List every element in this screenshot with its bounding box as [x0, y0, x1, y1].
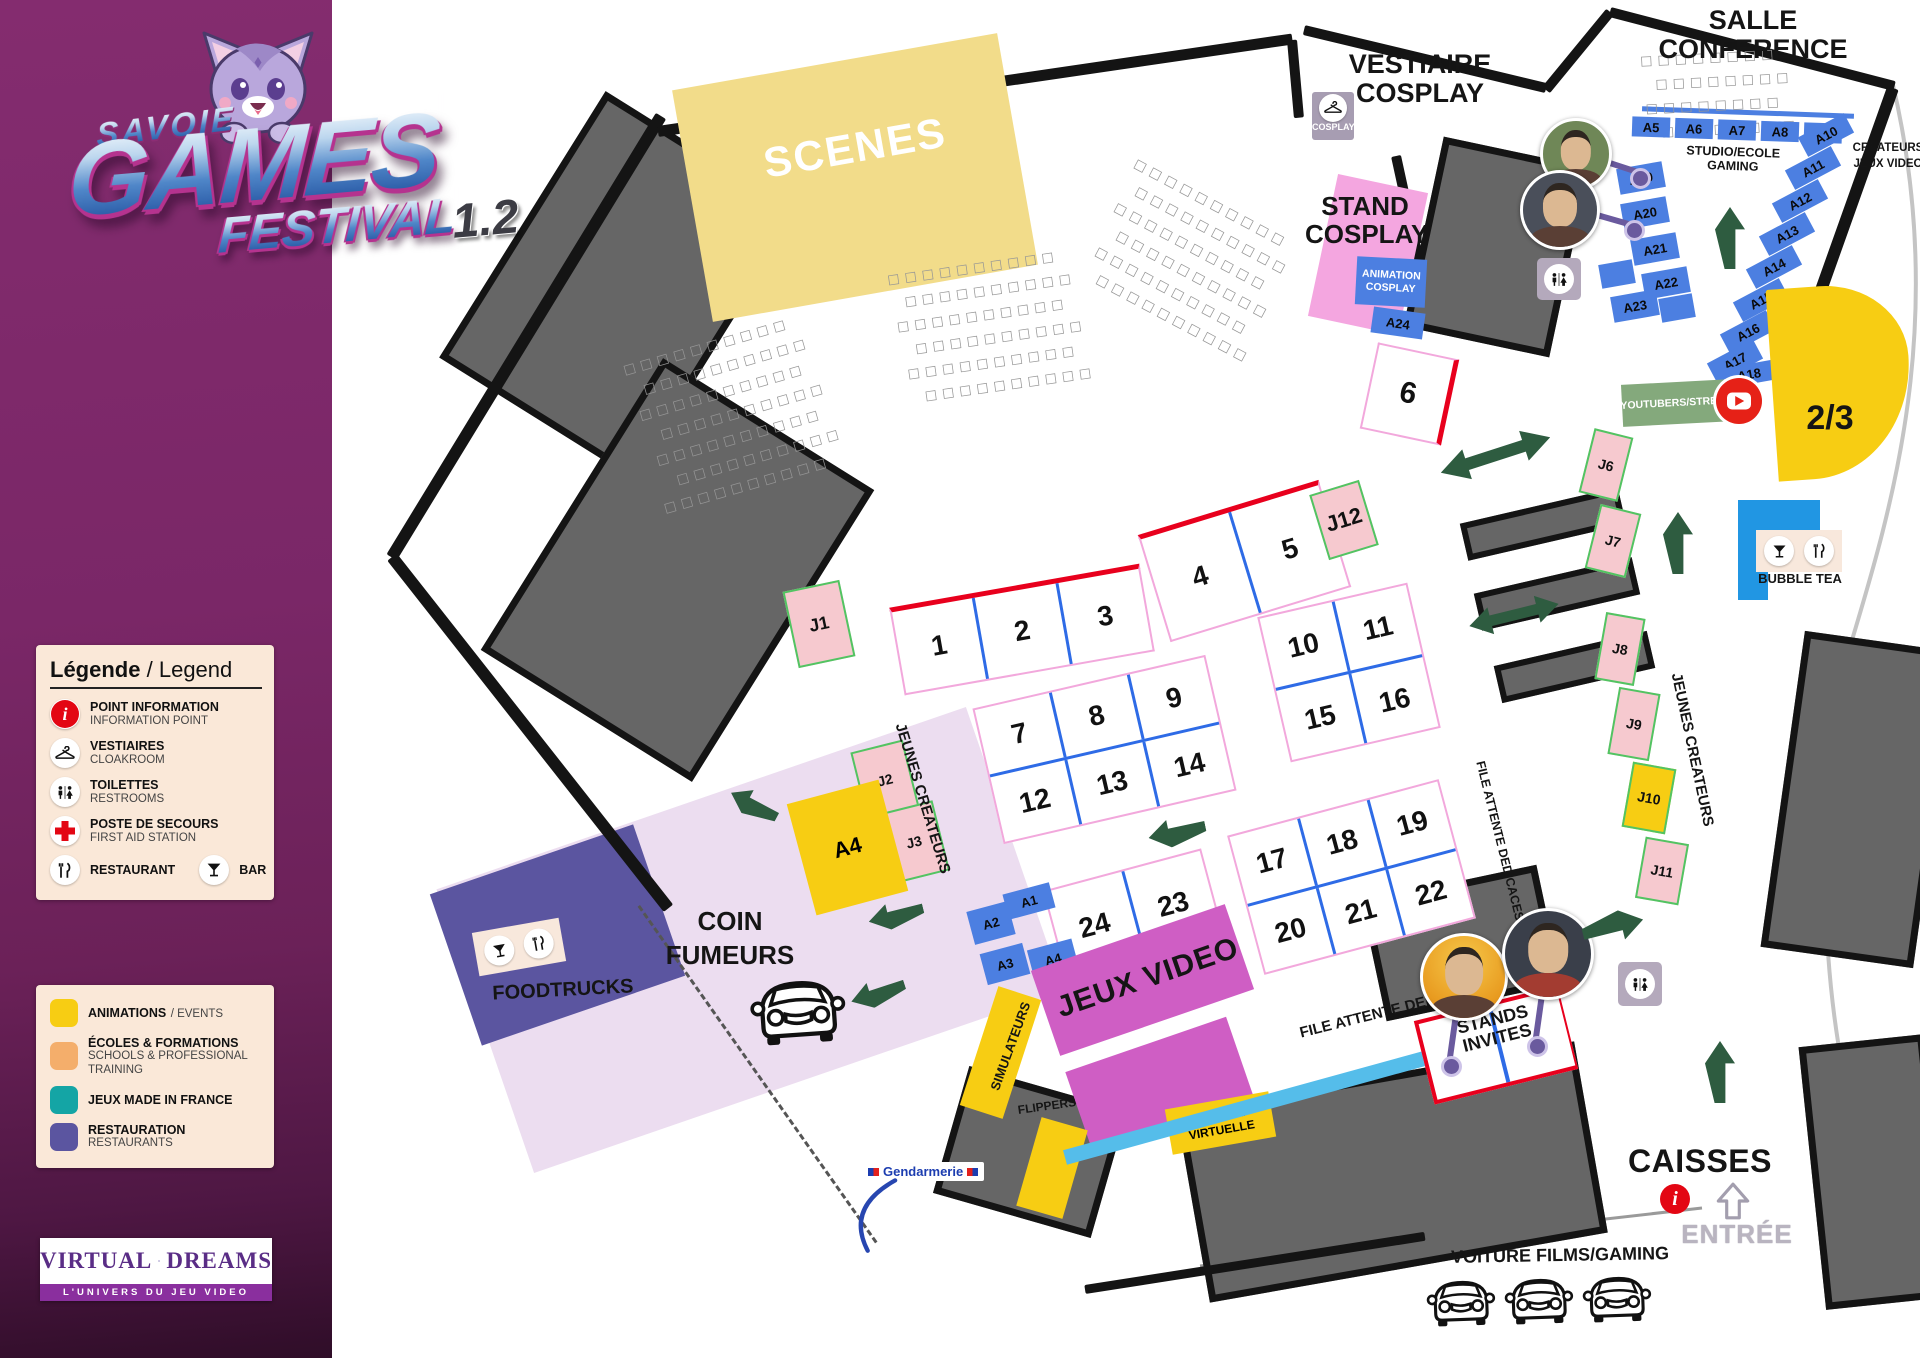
bar-icon: [1764, 536, 1794, 566]
restrooms-marker: [1618, 962, 1662, 1006]
bubble-tea-icons: [1756, 530, 1842, 572]
seat-rows-center: □□□□□□□□□□□□□□□□□□□□□□□□□□□□□□□□□□□□□□□□…: [886, 242, 1098, 412]
studio-ecole-gaming-label: STUDIO/ECOLE GAMING: [1668, 144, 1799, 176]
car-icon: [1580, 1267, 1654, 1327]
restroom-icon: [1625, 969, 1655, 999]
booth-12: 12: [990, 760, 1079, 841]
guest-pin-dot: [1630, 168, 1651, 189]
festival-map-page: Légende / Legend i POINT INFORMATION INF…: [0, 0, 1920, 1358]
restaurant-icon: [521, 926, 556, 961]
guest-pin-dot: [1527, 1036, 1548, 1057]
car-icon: [1424, 1271, 1498, 1331]
salle-conference-label: SALLE CONFERENCE: [1648, 6, 1858, 64]
guest-avatar: [1520, 170, 1600, 250]
info-point-marker: i: [1660, 1184, 1690, 1214]
animation-2-3-label: 2/3: [1790, 400, 1870, 437]
restrooms-marker: [1537, 258, 1581, 300]
gendarmerie-flag-icon: [967, 1168, 978, 1176]
stand-cosplay-label: STAND COSPLAY: [1305, 192, 1425, 248]
guest-pin-dot: [1441, 1056, 1462, 1077]
entrance-arrow-icon: [1712, 1180, 1754, 1222]
voiture-films-gaming-label: VOITURE FILMS/GAMING: [1445, 1244, 1675, 1267]
stand-a7: A7: [1718, 119, 1757, 140]
cosplay-cloakroom-badge: COSPLAY: [1312, 92, 1354, 140]
guest-pin-dot: [1624, 220, 1645, 241]
car-icon: [745, 965, 850, 1054]
animation-cosplay-stand: ANIMATION COSPLAY: [1355, 256, 1427, 308]
bar-icon: [482, 933, 517, 968]
stand-a5: A5: [1632, 116, 1671, 137]
booth-2: 2: [972, 584, 1069, 679]
vestiaire-cosplay-label: VESTIAIRE COSPLAY: [1345, 50, 1495, 108]
youtube-icon: [1716, 378, 1762, 424]
bubble-tea-label: BUBBLE TEA: [1750, 572, 1850, 586]
stand-a8: A8: [1761, 121, 1800, 142]
restroom-icon: [1544, 264, 1574, 294]
createurs-jeux-video-label: CREATEURS JEUX VIDEO: [1848, 142, 1920, 171]
caisses-label: CAISSES: [1590, 1144, 1810, 1179]
car-icon: [1502, 1269, 1576, 1329]
hanger-icon: [1319, 94, 1347, 122]
booth-16: 16: [1348, 657, 1439, 743]
restaurant-icon: [1804, 536, 1834, 566]
gendarmerie-logo: Gendarmerie: [862, 1162, 984, 1181]
entree-label: ENTRÉE: [1672, 1220, 1802, 1248]
booth-6: 6: [1362, 345, 1454, 443]
booth-1: 1: [892, 598, 986, 693]
gendarmerie-swoosh: [842, 1170, 902, 1262]
booth-3: 3: [1055, 569, 1152, 664]
guest-avatar: [1502, 908, 1594, 1000]
coin-fumeurs-label: COIN FUMEURS: [660, 905, 800, 973]
stand-a6: A6: [1675, 118, 1714, 139]
guest-avatar: [1420, 933, 1508, 1021]
